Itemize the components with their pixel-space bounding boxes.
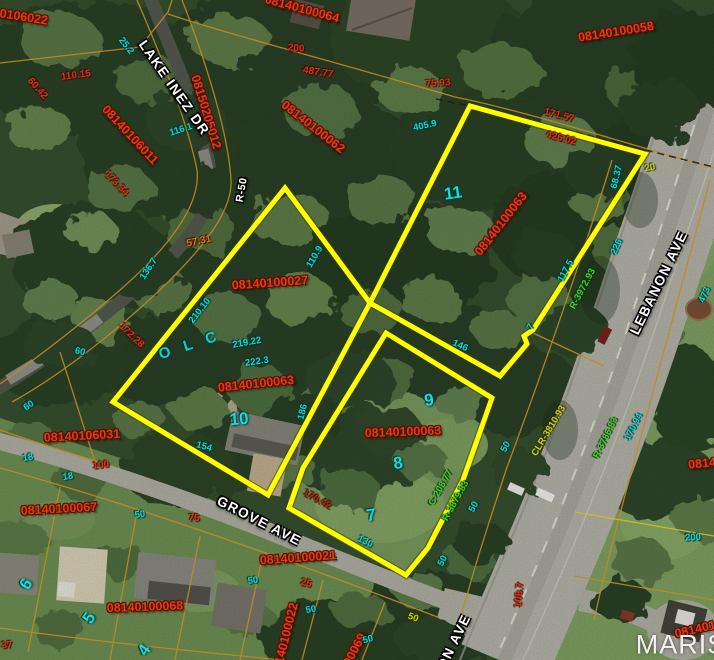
dimension-label-red: 100 [92,460,110,472]
dimension-label-red: 426.02 [545,130,577,147]
lot-number-label: 10 [229,410,249,429]
dimension-label-teal: 219.22 [232,336,262,350]
dimension-label-teal: 50 [467,500,480,514]
survey-section-label: O L C [157,328,223,362]
dimension-label-yellowgreen: 20 [644,162,656,173]
dimension-label-teal: 68.37 [610,164,625,189]
dimension-label-teal: 136.7 [138,256,159,281]
dimension-label-red: 108.7 [514,582,526,608]
curve-dimension-label: R-3786.83 [592,416,620,460]
parcel-id-label: 08140100058 [577,20,654,44]
dimension-label-red: 75.93 [425,78,451,90]
parcel-id-label: 08140100063 [365,424,442,439]
dimension-label-red: 173.34 [102,170,130,199]
parcel-id-label: 08140100063 [217,374,294,394]
parcel-id-label: 08140106031 [43,428,120,444]
dimension-label-teal: 200 [685,533,701,543]
dimension-label-red: 200 [287,43,305,55]
dimension-label-teal: 50 [134,510,146,521]
dimension-label-teal: 25.2 [117,36,136,56]
parcel-id-label: 08140100062 [279,99,347,156]
parcel-id-label: 08140100064 [263,0,340,25]
dimension-label-red: 57.31 [186,235,213,250]
parcel-id-label: 08140100022 [270,601,301,660]
dimension-label-teal: 226 [609,238,624,256]
dimension-label-teal: 473 [697,286,712,304]
road-radius-label: R-50 [235,177,250,203]
dimension-label-teal: 116.1 [168,122,193,138]
dimension-label-red: 110.15 [60,69,91,83]
curve-dimension-label: R-3972.93 [568,267,597,311]
dimension-label-teal: 50 [436,554,449,568]
dimension-label-teal: 222.3 [245,356,270,369]
parcel-id-label: 08140100067 [20,501,97,517]
dimension-label-teal: 7 [526,322,537,331]
lot-number-label: 7 [365,506,377,524]
parcel-id-label: 08140106011 [100,103,161,167]
street-name-label: ON AVE [435,612,473,660]
aerial-parcel-map: 0814010602208140100064081401000580814010… [0,0,714,660]
dimension-label-red: 487.77 [302,66,334,81]
dimension-label-teal: 60 [74,346,86,357]
dimension-label-teal: 117.5 [556,259,575,284]
street-name-label: GROVE AVE [215,494,303,548]
dimension-label-yellowgreen: CLR-3810.93 [530,404,568,458]
dimension-label-red: 25 [300,578,313,590]
dimension-label-yellowgreen: 50 [406,612,419,625]
parcel-id-label: 08140100068 [107,599,184,614]
dimension-label-teal: 50 [305,604,317,615]
dimension-label-teal: 50 [499,440,512,454]
dimension-label-red: 171.57 [543,107,575,124]
parcel-id-label: 08140100063 [473,190,530,258]
lot-number-label: 6 [16,575,35,593]
dimension-label-red: 60.42 [25,76,49,101]
dimension-label-red: 172.28 [117,322,146,350]
dimension-label-teal: 50 [362,634,375,646]
lot-number-label: 9 [423,391,435,409]
street-name-label: LAKE INEZ DR [136,38,212,138]
dimension-label-teal: 170.94 [623,412,645,442]
dimension-label-red: 75 [188,514,199,524]
parcel-id-label: 081401 [688,455,714,472]
curve-dimension-label: R-3879.83 [441,479,471,522]
parcel-id-label: 08140100027 [231,274,308,292]
curve-dimension-label: C-208.77 [427,469,454,508]
dimension-label-teal: 18 [62,471,74,482]
parcel-id-label: 08150205012 [189,74,223,151]
lot-number-label: 4 [134,641,153,659]
dimension-label-red: 37 [1,641,13,652]
dimension-label-red: 170.42 [301,488,333,511]
lot-number-label: 8 [392,454,404,472]
dimension-label-teal: 18 [22,452,34,463]
dimension-label-teal: 50 [247,576,259,587]
parcel-id-label: 08140100021 [259,549,336,567]
lot-number-label: 5 [79,609,98,627]
dimension-label-teal: 60 [22,399,36,413]
street-name-label: LEBANON AVE [628,229,690,337]
map-labels-layer: 0814010602208140100064081401000580814010… [0,0,714,660]
dimension-label-teal: 146 [451,338,469,353]
dimension-label-teal: 210.10 [187,297,212,326]
dimension-label-teal: 154 [195,440,213,453]
dimension-label-teal: 186 [296,403,309,421]
lot-number-label: 11 [443,183,463,202]
parcel-id-label: 08140106022 [0,3,49,27]
dimension-label-teal: 405.9 [412,119,437,133]
parcel-id-label: 08140100 [673,616,714,641]
dimension-label-teal: 130 [356,534,374,549]
parcel-id-label: 08140100069 [322,631,369,660]
dimension-label-teal: 110.9 [305,245,325,270]
